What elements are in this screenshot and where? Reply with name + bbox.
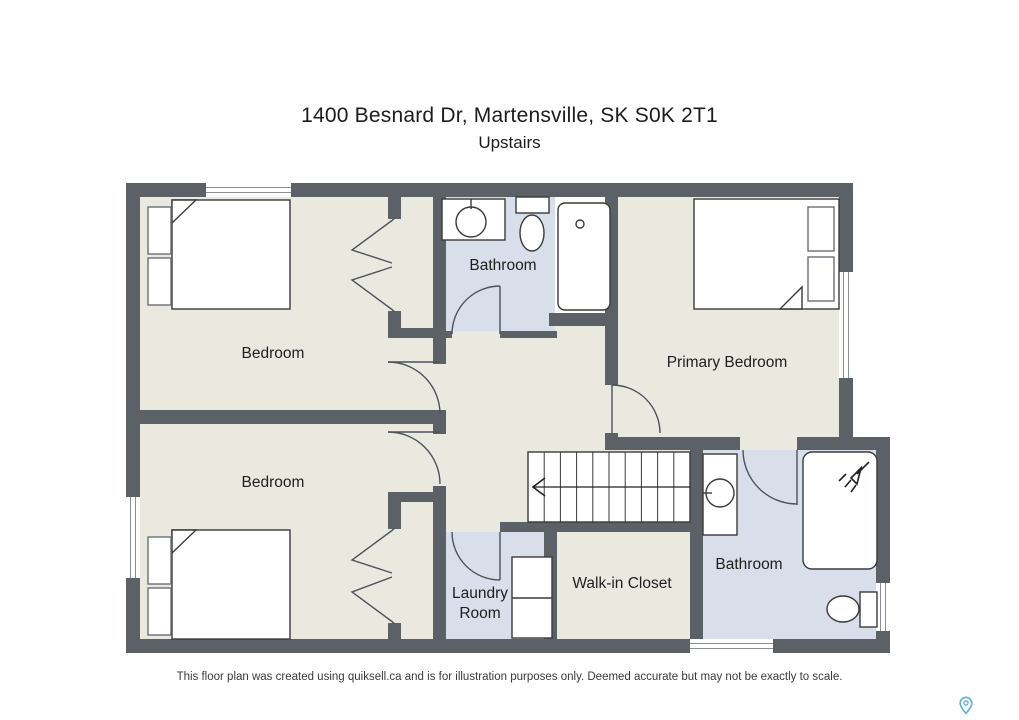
floor-plan-page: 1400 Besnard Dr, Martensville, SK S0K 2T… — [0, 0, 1019, 720]
bathtub-icon — [558, 203, 610, 310]
pillow-icon — [808, 257, 834, 301]
nightstand-icon — [148, 588, 171, 635]
shower-icon — [803, 452, 877, 569]
room-label-bathroom-top: Bathroom — [469, 256, 536, 276]
window-icon — [126, 497, 140, 578]
wall-closet-top-jamb-a — [388, 197, 401, 219]
toilet-icon — [516, 197, 549, 213]
room-label-bedroom-bottom: Bedroom — [242, 473, 305, 493]
nightstand-icon — [148, 258, 171, 305]
wall-bathroom-top-south — [500, 331, 557, 338]
disclaimer-text: This floor plan was created using quikse… — [0, 671, 1019, 683]
sink-basin — [456, 207, 486, 237]
bed-icon — [172, 530, 290, 639]
wall-bathroom-top-south-jamb — [446, 331, 452, 338]
wall-primary-south-a — [605, 437, 740, 450]
wall-under-stairs — [500, 522, 703, 532]
bathtub-drain — [576, 220, 584, 228]
wall-primary-south-b — [797, 437, 853, 450]
window-icon — [839, 272, 853, 378]
window-icon — [876, 583, 890, 631]
room-label-primary-bedroom: Primary Bedroom — [667, 353, 788, 373]
map-pin-icon — [959, 696, 973, 715]
toilet-bowl — [827, 596, 859, 622]
wall-closet-bottom-jamb-a — [388, 492, 401, 529]
room-label-laundry-room: Laundry Room — [440, 584, 520, 624]
nightstand-icon — [148, 207, 171, 254]
toilet-icon — [860, 592, 877, 627]
bed-icon — [172, 200, 290, 309]
staircase-icon — [528, 452, 690, 522]
toilet-bowl — [520, 215, 544, 251]
wall-tub-alcove-south — [549, 313, 612, 326]
room-label-bedroom-top: Bedroom — [242, 344, 305, 364]
wall-closet-bottom-jamb-b — [388, 623, 401, 639]
room-label-bathroom-bottom: Bathroom — [715, 555, 782, 575]
room-label-walk-in-closet: Walk-in Closet — [572, 574, 671, 594]
floor-plan: Bedroom Bedroom Bathroom Primary Bedroom… — [0, 0, 1019, 720]
wall-bathroom-bottom-west — [690, 450, 703, 639]
pillow-icon — [808, 207, 834, 251]
nightstand-icon — [148, 537, 171, 584]
wall-bottom — [126, 639, 890, 653]
window-icon — [206, 183, 291, 197]
window-icon — [690, 639, 773, 653]
wall-hall-west-a — [433, 338, 446, 364]
wall-hall-west-b — [433, 413, 446, 434]
wall-between-bedrooms — [126, 410, 446, 424]
